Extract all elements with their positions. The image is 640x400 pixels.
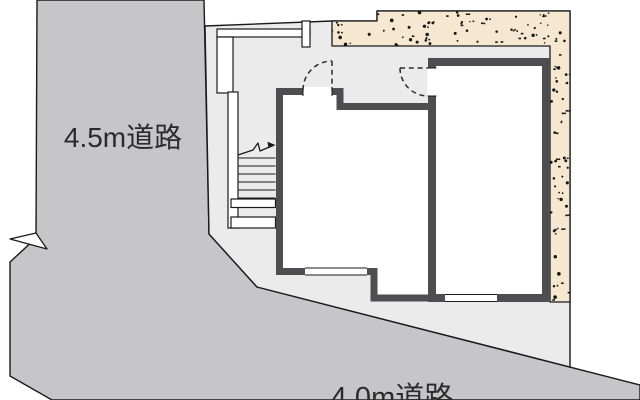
window-right-room: [445, 294, 497, 302]
road-bottom-label: 4.0m道路: [331, 381, 453, 400]
entrance-step-upper: [231, 199, 276, 208]
right-room: [432, 62, 546, 298]
window-center-room: [305, 268, 367, 276]
door-opening-right-room: [428, 68, 437, 96]
entrance-step-lower: [231, 217, 276, 228]
door-opening-center-room: [303, 87, 332, 96]
road-left-label: 4.5m道路: [64, 122, 182, 153]
entrance-wall-top: [217, 29, 310, 37]
entrance-wall-stub: [302, 21, 310, 47]
site-plan-page: 4.5m道路 4.0m道路: [0, 0, 640, 400]
center-room: [280, 92, 433, 299]
site-plan: 4.5m道路 4.0m道路: [0, 0, 640, 400]
entrance-wall-left-upper: [217, 37, 233, 93]
